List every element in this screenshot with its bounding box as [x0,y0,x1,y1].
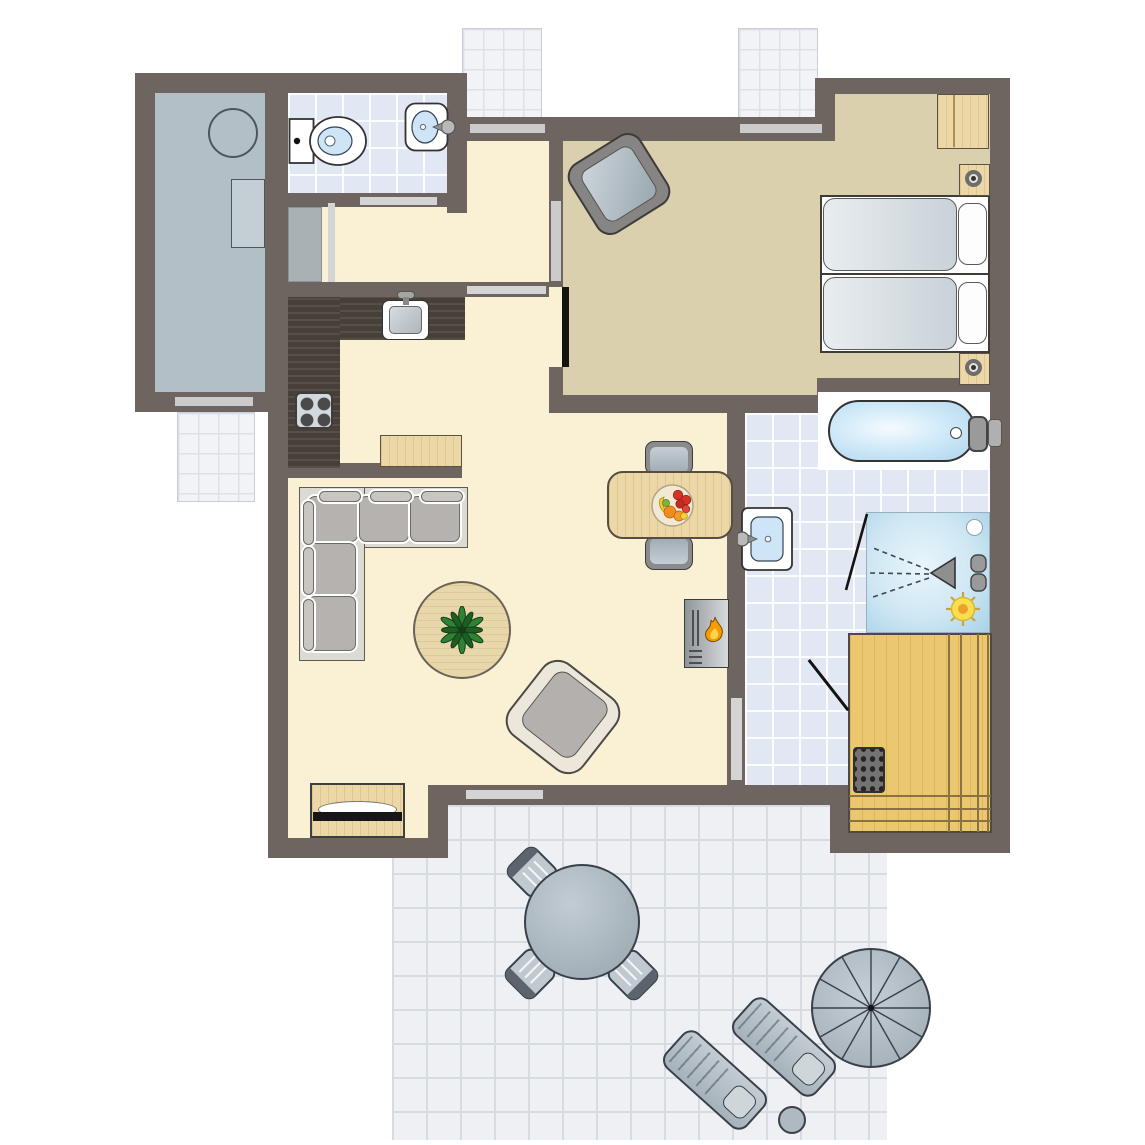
bed-mattress-2 [823,277,957,350]
sofa-bolster [303,599,314,651]
parasol [809,946,933,1070]
dining-chair-bottom-seat [650,538,688,564]
wall-segment [268,838,448,858]
kitchen-side-table [380,435,462,467]
appliance [231,179,265,248]
sofa-cushion [308,543,356,595]
lamp-center-dot [971,176,976,181]
pillow-1 [958,203,987,265]
sauna-bench-line [987,634,989,832]
plant [438,606,486,654]
bathtub-knob [950,427,962,439]
sauna-bench-line [960,634,962,832]
bedroom-wardrobe [937,94,989,149]
bedside-table-2 [959,353,990,385]
fireplace-line [689,650,702,652]
sofa-bolster [303,501,314,545]
storage-window [175,397,253,406]
wall-mixer [988,419,1002,447]
toilet-washbasin [404,102,456,154]
wall-segment [549,395,830,413]
sofa-bolster [303,547,314,595]
toilet [288,112,372,170]
kitchen-faucet-spout [403,297,409,305]
sauna-heater [853,747,885,793]
shower-ceiling-light [966,519,983,536]
bedroom-top-window [740,124,822,133]
wall-segment [268,412,288,858]
fireplace-line [692,610,694,646]
sauna-cabin [848,633,992,833]
shower-door-line [846,514,867,590]
sauna-bench-line [977,634,979,832]
hallway-floor-upper [467,141,549,213]
floor-plan [0,0,1145,1145]
kitchen-counter-side [288,297,340,468]
sofa-cushion [410,496,460,542]
paved-patch-top-right [738,28,818,118]
hall-closet-door [328,203,335,282]
paved-patch-top-left [462,28,542,118]
hallway-kitchen-door [467,286,546,294]
tv-screen [313,812,402,821]
bedroom-doorway-floor [549,287,563,367]
bed-divider [820,273,990,275]
bathtub-faucet [968,416,988,452]
wall-segment [135,73,155,412]
wardrobe-seam [953,95,955,147]
bed-mattress-1 [823,198,957,271]
stove [295,392,333,429]
heat-lamp-sun [946,592,980,626]
wall-segment [135,73,467,93]
bedside-table-1 [959,164,990,196]
toilet-room-door [360,197,437,205]
pillow-2 [958,282,987,344]
sofa-bolster [421,491,463,502]
bedroom-side-window [551,201,561,281]
terrace-side-table [778,1106,806,1134]
dining-chair-top-seat [650,447,688,473]
lamp-center-dot [971,365,976,370]
wall-segment [990,78,1010,853]
terrace-table [524,864,640,980]
sofa-bolster [370,491,412,502]
sofa-bolster [319,491,361,502]
kitchen-sink-basin [389,306,422,334]
sauna-bench-line [849,820,991,822]
fireplace-line [689,656,702,658]
bathroom-washbasin [738,506,794,572]
bedroom-door-leaf [562,287,569,367]
hall-closet [288,207,322,282]
sauna-bench-line [849,795,991,797]
sofa-cushion [308,596,356,651]
hallway-window [470,124,545,133]
sofa-cushion [308,496,358,542]
terrace-door [466,790,543,799]
fruit-bowl [650,483,695,528]
fireplace-line [697,610,699,646]
paved-patch-storage [177,412,255,502]
wall-segment [265,73,288,412]
fireplace-line [689,662,702,664]
wall-segment [830,833,1010,853]
sauna-bench-line [948,634,950,832]
lounger-pillow [720,1082,760,1122]
sofa-cushion [359,496,409,542]
bathroom-door [731,698,742,780]
sauna-bench-line [849,808,991,810]
boiler [208,108,258,158]
wall-segment [815,78,1010,94]
flame-icon [701,615,727,649]
